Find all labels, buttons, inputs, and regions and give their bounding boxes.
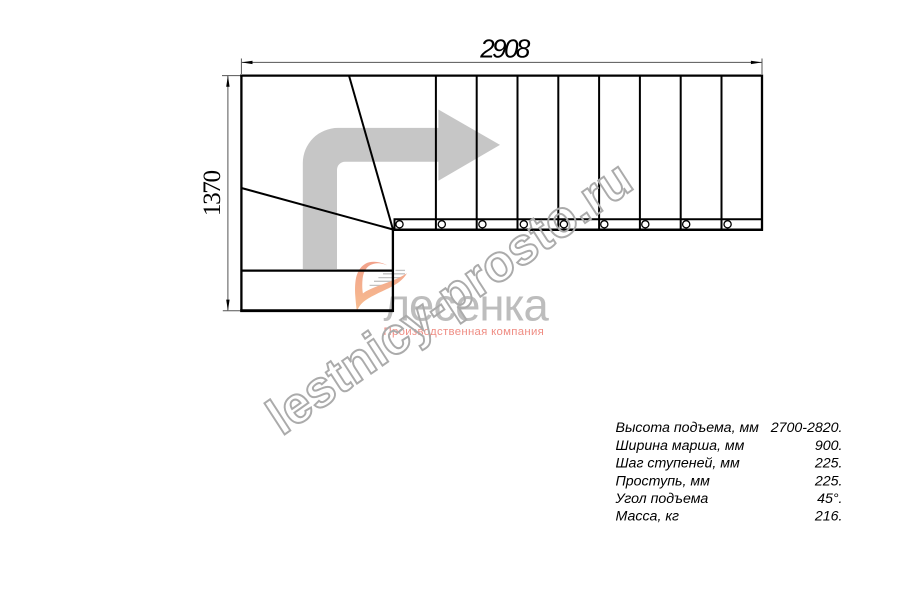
svg-text:Проступь, мм: Проступь, мм bbox=[616, 473, 711, 489]
svg-text:Масса, кг: Масса, кг bbox=[616, 509, 680, 525]
svg-text:900.: 900. bbox=[815, 438, 843, 454]
svg-text:225.: 225. bbox=[814, 473, 843, 489]
svg-text:216.: 216. bbox=[814, 509, 843, 525]
svg-text:1370: 1370 bbox=[199, 171, 226, 217]
svg-text:Шаг ступеней, мм: Шаг ступеней, мм bbox=[616, 456, 740, 472]
svg-text:225.: 225. bbox=[814, 456, 843, 472]
svg-text:Высота подъема, мм: Высота подъема, мм bbox=[616, 420, 760, 436]
svg-text:2700-2820.: 2700-2820. bbox=[770, 420, 843, 436]
svg-text:Ширина марша, мм: Ширина марша, мм bbox=[616, 438, 745, 454]
svg-text:45°.: 45°. bbox=[817, 491, 842, 507]
svg-text:Угол подъема: Угол подъема bbox=[615, 491, 709, 507]
svg-text:2908: 2908 bbox=[479, 34, 531, 64]
